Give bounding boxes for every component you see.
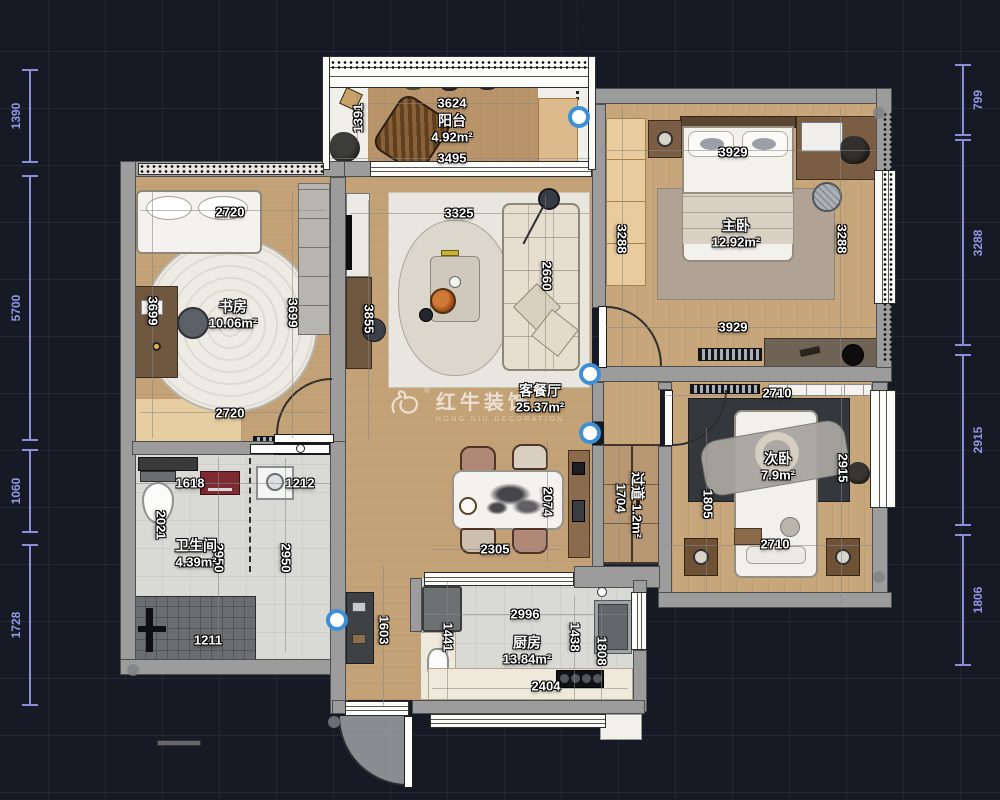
red-cabinet-handle	[208, 488, 232, 491]
entry-door-leaf	[404, 716, 413, 788]
dining-chair	[512, 528, 548, 554]
wall-handle-dot[interactable]	[326, 609, 348, 631]
dimension-label: 1391	[351, 104, 366, 133]
wall-bath-right	[330, 441, 346, 714]
window-second-right	[870, 390, 896, 508]
hallway-floor	[604, 382, 660, 445]
sideboard-item	[572, 500, 585, 522]
exterior-step	[600, 714, 642, 740]
edge-dimension-line	[29, 70, 31, 162]
dimension-label: 3288	[615, 225, 630, 254]
wall-kitchen-top-right	[574, 566, 660, 588]
dimension-label: 1805	[701, 490, 716, 519]
wall-second-left-a	[658, 382, 672, 390]
edge-dimension-tick	[22, 161, 38, 163]
dimension-label: 2720	[216, 406, 245, 421]
bath-vanity	[138, 457, 198, 471]
toilet-tank	[140, 471, 176, 482]
room-label: 客餐厅25.37m²	[516, 381, 564, 416]
dinner-plate	[459, 497, 477, 515]
burner	[582, 674, 591, 683]
balcony-sliding-window	[370, 161, 592, 177]
bull-logo-icon	[388, 386, 422, 418]
dimension-label: 1704	[614, 484, 629, 513]
dining-chair	[460, 446, 496, 472]
edge-dimension-tick	[955, 524, 971, 526]
edge-dimension-label: 1728	[9, 612, 23, 639]
wall-kitchen-bottom	[412, 700, 645, 714]
room-label: 过道1.2m²	[628, 472, 647, 538]
dimension-label: 1603	[377, 616, 392, 645]
kitchen-outlet-circle	[597, 587, 607, 597]
dimension-label: 3624	[438, 96, 467, 111]
edge-dimension-tick	[955, 664, 971, 666]
master-pillow-accent	[752, 138, 776, 150]
balcony-planter	[330, 60, 588, 70]
edge-dimension-tick	[22, 531, 38, 533]
registered-mark: ®	[424, 386, 430, 395]
edge-dimension-tick	[22, 175, 38, 177]
edge-dimension-label: 2915	[971, 427, 985, 454]
study-side-cabinet	[298, 183, 330, 335]
dimension-label: 2404	[532, 679, 561, 694]
edge-dimension-line	[962, 355, 964, 525]
wall-living-right-b	[592, 445, 604, 570]
edge-dimension-tick	[22, 544, 38, 546]
wall-handle-dot[interactable]	[579, 422, 601, 444]
second-door-leaf	[664, 390, 673, 446]
wall-second-bottom	[658, 592, 892, 608]
exterior-bar	[157, 740, 201, 746]
burner	[571, 674, 580, 683]
slider-knob	[296, 444, 305, 453]
edge-dimension-line	[962, 65, 964, 135]
room-label: 阳台4.92m²	[431, 111, 472, 146]
dimension-label: 3288	[835, 225, 850, 254]
room-label: 主卧12.92m²	[712, 216, 760, 251]
brand-subtitle: HONG NIU DECORATION	[436, 416, 565, 423]
tea-tray	[441, 250, 459, 256]
edge-dimension-line	[29, 450, 31, 532]
dimension-label: 1808	[595, 637, 610, 666]
edge-dimension-line	[962, 140, 964, 345]
room-label: 卫生间4.39m²	[175, 536, 217, 571]
dimension-label: 2710	[761, 537, 790, 552]
dimension-label: 3699	[146, 297, 161, 326]
master-bed-bench	[698, 348, 762, 361]
dresser-stool	[812, 182, 842, 212]
dimension-label: 3929	[719, 145, 748, 160]
dimension-label: 2074	[541, 488, 556, 517]
window-kitchen-bottom	[430, 714, 606, 728]
wall-left-outer	[120, 161, 136, 675]
edge-dimension-tick	[955, 134, 971, 136]
room-label: 次卧7.9m²	[761, 449, 795, 484]
table-lamp	[657, 131, 673, 147]
edge-dimension-tick	[955, 354, 971, 356]
wall-corridor-kitchen	[410, 578, 422, 632]
fruit-plate	[430, 288, 456, 314]
measure-line	[432, 688, 628, 689]
dimension-label: 2996	[511, 607, 540, 622]
master-wardrobe	[606, 118, 646, 286]
bath-sliding-door	[250, 444, 330, 454]
edge-dimension-tick	[22, 439, 38, 441]
edge-dimension-label: 3288	[971, 229, 985, 256]
second-brown-pillow	[734, 528, 762, 545]
room-label: 书房10.06m²	[209, 297, 257, 332]
wall-second-left-b	[658, 446, 672, 604]
second-plant	[848, 462, 870, 484]
dimension-label: 3929	[719, 320, 748, 335]
shower-glass-partition	[249, 458, 253, 572]
wall-master-second-divider	[592, 366, 892, 382]
dimension-label: 1211	[194, 633, 222, 648]
wall-handle-dot[interactable]	[579, 363, 601, 385]
dining-chair	[512, 444, 548, 470]
edge-dimension-tick	[955, 139, 971, 141]
dimension-label: 3495	[438, 151, 467, 166]
record-player	[842, 344, 864, 366]
wall-master-top	[592, 88, 884, 104]
teapot	[419, 308, 433, 322]
dimension-label: 2710	[763, 386, 792, 401]
wall-living-right-a	[592, 382, 604, 422]
dimension-label: 2660	[540, 262, 555, 291]
corner-node	[328, 716, 340, 728]
edge-dimension-tick	[955, 534, 971, 536]
edge-dimension-tick	[22, 69, 38, 71]
edge-dimension-label: 1390	[9, 103, 23, 130]
dimension-label: 3855	[362, 305, 377, 334]
dresser-mirror	[801, 122, 843, 152]
floor-plan-canvas: ® 红牛装饰 HONG NIU DECORATION 3624349513912…	[0, 0, 1000, 800]
dimension-label: 1441	[441, 623, 456, 652]
edge-dimension-label: 1806	[971, 587, 985, 614]
dimension-label: 2021	[154, 511, 169, 540]
edge-dimension-label: 1060	[9, 478, 23, 505]
edge-dimension-tick	[955, 64, 971, 66]
measure-line	[841, 386, 842, 604]
second-ball-pillow	[780, 517, 800, 537]
dimension-label: 1618	[176, 476, 205, 491]
teacup	[449, 276, 461, 288]
edge-dimension-tick	[955, 344, 971, 346]
edge-dimension-label: 799	[971, 90, 985, 110]
edge-dimension-line	[29, 545, 31, 705]
dimension-label: 2720	[216, 205, 245, 220]
corner-node	[873, 571, 885, 583]
shoe-cabinet-item	[352, 602, 366, 612]
wall-bath-bottom	[120, 659, 346, 675]
desk-knob	[152, 342, 161, 351]
wall-living-top-stub	[344, 161, 372, 177]
edge-dimension-line	[962, 535, 964, 665]
coffee-machine	[572, 462, 585, 475]
corner-node	[873, 107, 885, 119]
balcony-frame-left	[322, 56, 330, 170]
entry-threshold	[345, 701, 409, 716]
shower-fixture-arm	[138, 626, 166, 632]
dimension-label: 3699	[286, 299, 301, 328]
edge-dimension-line	[29, 176, 31, 440]
burner	[560, 674, 569, 683]
corner-node	[127, 664, 139, 676]
study-chair	[177, 307, 209, 339]
room-label: 厨房13.84m²	[503, 633, 551, 668]
dimension-label: 2950	[279, 544, 294, 573]
window-planter-study-top	[138, 163, 324, 175]
washer-door	[266, 473, 284, 491]
exterior-foliage-right	[882, 112, 894, 362]
shoe-cabinet-item	[352, 634, 366, 644]
dimension-label: 2305	[481, 542, 510, 557]
table-lamp	[835, 549, 851, 565]
dimension-label: 2915	[836, 454, 851, 483]
edge-dimension-tick	[22, 704, 38, 706]
dimension-label: 1212	[286, 476, 315, 491]
dimension-label: 3325	[445, 206, 474, 221]
master-door-leaf	[598, 306, 607, 368]
study-door-leaf	[274, 434, 334, 443]
wall-handle-dot[interactable]	[568, 106, 590, 128]
entry-door-swing	[338, 716, 408, 786]
dimension-label: 1438	[568, 623, 583, 652]
wall-study-right	[330, 177, 346, 443]
window-kitchen-right	[631, 592, 647, 650]
edge-dimension-tick	[22, 449, 38, 451]
edge-dimension-label: 5700	[9, 295, 23, 322]
